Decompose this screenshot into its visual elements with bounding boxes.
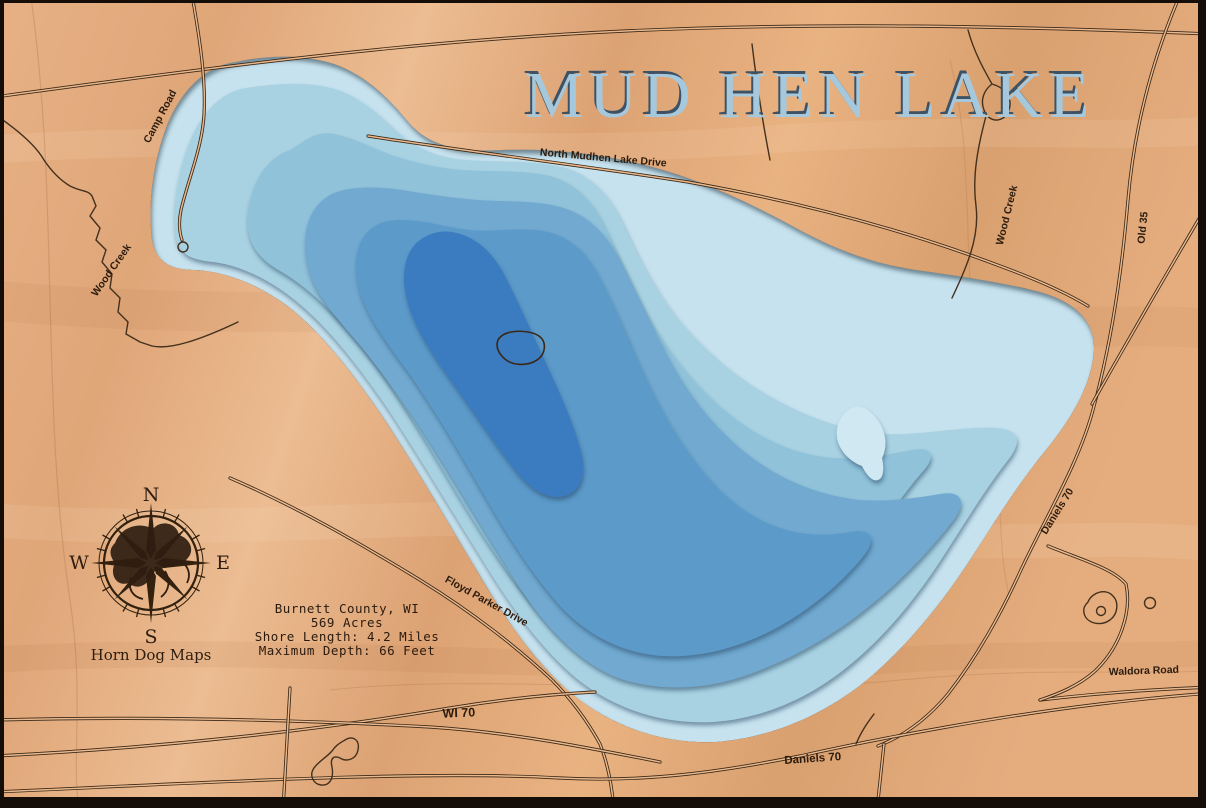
brand-text: Horn Dog Maps — [91, 646, 212, 664]
compass-south-label: S — [144, 626, 157, 648]
lake-stats: Burnett County, WI 569 Acres Shore Lengt… — [255, 601, 440, 658]
stat-max-depth: Maximum Depth: 66 Feet — [259, 643, 436, 658]
wooden-lake-map: MUD HEN LAKE MUD HEN LAKE North Mudhen L… — [0, 0, 1206, 808]
label-wi-70: WI 70 — [442, 705, 475, 720]
lake-title: MUD HEN LAKE MUD HEN LAKE — [523, 56, 1096, 132]
label-waldora-road: Waldora Road — [1109, 664, 1180, 678]
stat-shore-length: Shore Length: 4.2 Miles — [255, 629, 440, 644]
compass-north-label: N — [143, 484, 160, 506]
compass-east-label: E — [216, 552, 230, 574]
lake-title-text: MUD HEN LAKE — [525, 59, 1096, 132]
compass-west-label: W — [69, 552, 89, 574]
stat-acres: 569 Acres — [311, 615, 383, 630]
lake-map-svg: MUD HEN LAKE MUD HEN LAKE North Mudhen L… — [0, 0, 1206, 808]
stat-county: Burnett County, WI — [275, 601, 419, 616]
